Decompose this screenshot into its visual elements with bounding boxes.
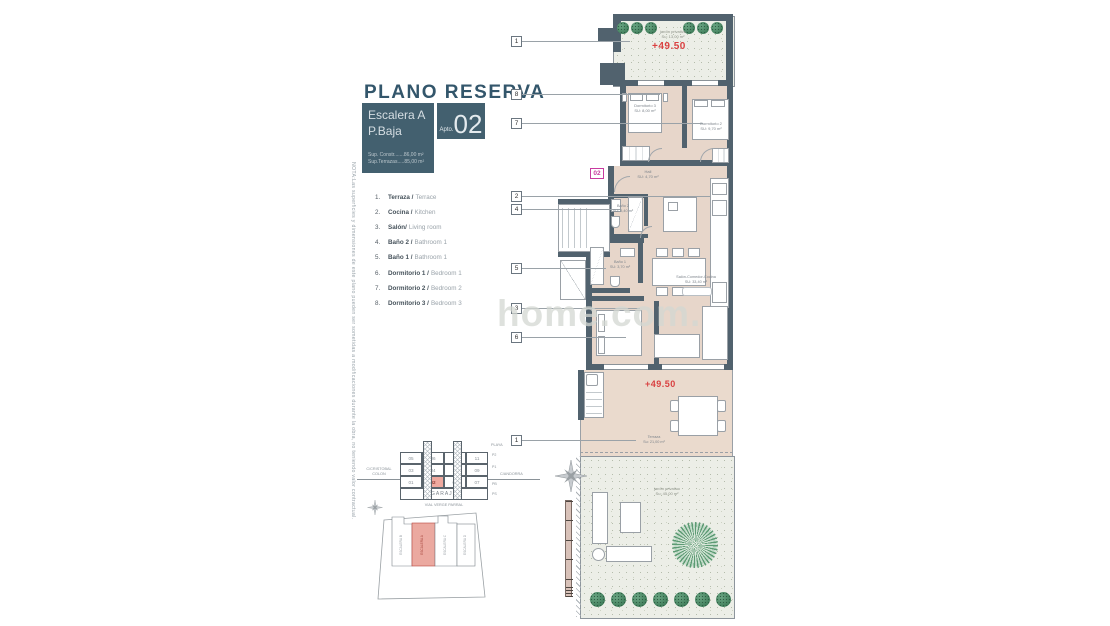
garden-coffee-table bbox=[592, 548, 605, 561]
sofa bbox=[654, 334, 700, 358]
floor-label: P.Baja bbox=[368, 124, 434, 138]
stair-tower bbox=[453, 441, 462, 500]
chair bbox=[670, 400, 679, 412]
level-annotation-top: +49.50 bbox=[652, 41, 686, 52]
site-plan: ESCALERA B ESCALERA A ESCALERA C ESCALER… bbox=[362, 498, 497, 610]
legend-item: 8.Dormitorio 3 /Bedroom 3 bbox=[375, 296, 462, 311]
living-room-label: Salón-Comedor-Cocina SU: 33,40 m² bbox=[668, 275, 724, 284]
bush bbox=[711, 22, 723, 34]
garage-label-cell: GARAJE bbox=[400, 488, 488, 500]
shelves bbox=[586, 392, 602, 414]
watermark: home.com. bbox=[497, 293, 701, 335]
island-sink bbox=[668, 202, 678, 211]
compass-icon-small bbox=[368, 500, 383, 515]
toilet bbox=[610, 276, 620, 287]
window bbox=[662, 364, 724, 370]
legend-item: 1.Terraza /Terrace bbox=[375, 190, 462, 205]
wall bbox=[726, 14, 733, 85]
bush bbox=[611, 592, 626, 607]
bush bbox=[631, 22, 643, 34]
bush bbox=[716, 592, 731, 607]
chair bbox=[717, 400, 726, 412]
bush bbox=[653, 592, 668, 607]
street-line-left bbox=[357, 479, 400, 480]
leader-line bbox=[522, 41, 630, 42]
room-legend: 1.Terraza /Terrace 2.Cocina /Kitchen 3.S… bbox=[375, 190, 462, 311]
floor-level-label: PB bbox=[492, 482, 497, 486]
pillow bbox=[646, 94, 659, 101]
garage-cell: 11 bbox=[466, 452, 488, 464]
bedroom3-label: Dormitorio 3 SU: 8,00 m² bbox=[630, 103, 660, 113]
callout-marker-bedroom3: 8 bbox=[511, 89, 522, 100]
apto-number: 02 bbox=[454, 112, 483, 137]
leader-line bbox=[522, 94, 660, 95]
terrace-boundary-dashed bbox=[580, 452, 733, 453]
kitchen-sink bbox=[712, 183, 727, 195]
bush bbox=[632, 592, 647, 607]
hall-label: Hall SU: 4,70 m² bbox=[634, 169, 662, 179]
floor-level-label: P1 bbox=[492, 465, 496, 469]
floor-level-label: P2 bbox=[492, 453, 496, 457]
unit-label-highlighted: ESCALERA A bbox=[420, 534, 424, 555]
floor-level-label: PS bbox=[492, 492, 497, 496]
leader-line bbox=[522, 440, 636, 441]
chair bbox=[717, 420, 726, 432]
window bbox=[692, 80, 718, 86]
bathroom1-label: Baño 1 SU: 3,70 m² bbox=[607, 260, 633, 269]
garage-cell: 09 bbox=[466, 464, 488, 476]
sofa bbox=[702, 306, 728, 360]
terrace-label: Terraza Su: 21,00 m² bbox=[640, 435, 668, 444]
wall bbox=[638, 243, 643, 283]
callout-marker-bath1: 5 bbox=[511, 263, 522, 274]
stair-label: Escalera A bbox=[368, 108, 434, 122]
garage-cell: 05 bbox=[400, 452, 422, 464]
scale-bar bbox=[565, 500, 572, 597]
leader-line bbox=[522, 209, 620, 210]
legend-item: 2.Cocina /Kitchen bbox=[375, 205, 462, 220]
fridge bbox=[712, 282, 727, 303]
bush bbox=[617, 22, 629, 34]
callout-marker-terrace: 1 bbox=[511, 435, 522, 446]
street-line-right bbox=[488, 479, 540, 480]
callout-marker-terrace-top: 1 bbox=[511, 36, 522, 47]
legend-item: 4.Baño 2 /Bathroom 1 bbox=[375, 235, 462, 250]
street-label-left: C/CRISTOBAL COLON bbox=[360, 467, 398, 476]
legend-item: 3.Salón/Living room bbox=[375, 220, 462, 235]
garden-sofa bbox=[606, 546, 652, 562]
legend-item: 6.Dormitorio 1 /Bedroom 1 bbox=[375, 265, 462, 280]
compass-icon bbox=[555, 459, 587, 493]
terrace-table bbox=[678, 396, 718, 436]
leader-line bbox=[522, 196, 710, 197]
pillow bbox=[711, 100, 725, 107]
pillow bbox=[694, 100, 708, 107]
stair-steps bbox=[562, 208, 592, 248]
chair bbox=[656, 248, 668, 257]
wardrobe bbox=[622, 146, 650, 161]
kitchen-hob bbox=[712, 200, 727, 216]
bathroom2-label: Baño 2 SU: 3,40 m² bbox=[610, 204, 636, 213]
wall bbox=[613, 14, 733, 21]
pillow bbox=[598, 336, 605, 354]
unit-label: ESCALERA B bbox=[399, 535, 403, 555]
garden-tree bbox=[672, 522, 718, 568]
street-label-right: C/ANDORRA bbox=[500, 472, 523, 477]
apartment-number-box: Apto. 02 bbox=[437, 103, 485, 139]
legend-item: 7.Dormitorio 2 /Bedroom 2 bbox=[375, 281, 462, 296]
wardrobe bbox=[712, 148, 729, 163]
stair-tower bbox=[423, 441, 432, 500]
playa-label: PLAYA bbox=[491, 443, 503, 448]
callout-marker-bedroom2: 7 bbox=[511, 118, 522, 129]
garden-sofa bbox=[592, 492, 608, 544]
garage-cell: 03 bbox=[400, 464, 422, 476]
callout-marker-kitchen: 2 bbox=[511, 191, 522, 202]
wall bbox=[598, 28, 614, 42]
window bbox=[604, 364, 648, 370]
washer bbox=[586, 374, 598, 386]
callout-marker-bath2: 4 bbox=[511, 204, 522, 215]
leader-line bbox=[522, 123, 703, 124]
garage-grid: 05 06 12 11 03 04 10 09 01 02 08 07 bbox=[400, 452, 488, 488]
window bbox=[638, 80, 664, 86]
surface-terrace: Sup.Terrazas.....85,00 m² bbox=[368, 159, 434, 165]
unit-info-box: Escalera A P.Baja Sup. Constr.......86,0… bbox=[362, 103, 434, 173]
bush bbox=[674, 592, 689, 607]
bottom-garden-label: jardín privativo Su: 45,00 m² bbox=[642, 486, 692, 496]
chair bbox=[670, 420, 679, 432]
garage-cell: 01 bbox=[400, 476, 422, 488]
nightstand bbox=[663, 93, 668, 102]
unit-label: ESCALERA D bbox=[463, 534, 467, 555]
bush bbox=[695, 592, 710, 607]
toilet bbox=[611, 216, 620, 228]
legend-item: 5.Baño 1 /Bathroom 1 bbox=[375, 250, 462, 265]
sink bbox=[620, 248, 635, 257]
garden-table bbox=[620, 502, 641, 533]
wall bbox=[682, 86, 687, 148]
chair bbox=[688, 248, 700, 257]
apto-label: Apto. bbox=[440, 127, 454, 133]
bush bbox=[590, 592, 605, 607]
unit-label: ESCALERA C bbox=[443, 534, 447, 555]
pillow bbox=[630, 94, 643, 101]
shower bbox=[590, 247, 604, 285]
wall bbox=[558, 199, 610, 204]
unit-badge: 02 bbox=[590, 168, 604, 179]
wall bbox=[644, 194, 648, 226]
surface-constr: Sup. Constr.......86,00 m² bbox=[368, 152, 434, 158]
leader-line bbox=[522, 337, 626, 338]
top-garden-label: jardín privativo Su: 13,00 m² bbox=[645, 29, 701, 39]
level-annotation-terrace: +49.50 bbox=[645, 379, 676, 389]
garage-cell: 07 bbox=[466, 476, 488, 488]
chair bbox=[672, 248, 684, 257]
shower bbox=[628, 197, 643, 232]
leader-line bbox=[522, 268, 606, 269]
disclaimer-note: NOTA:Las superficies y dimensiones de es… bbox=[347, 162, 356, 528]
